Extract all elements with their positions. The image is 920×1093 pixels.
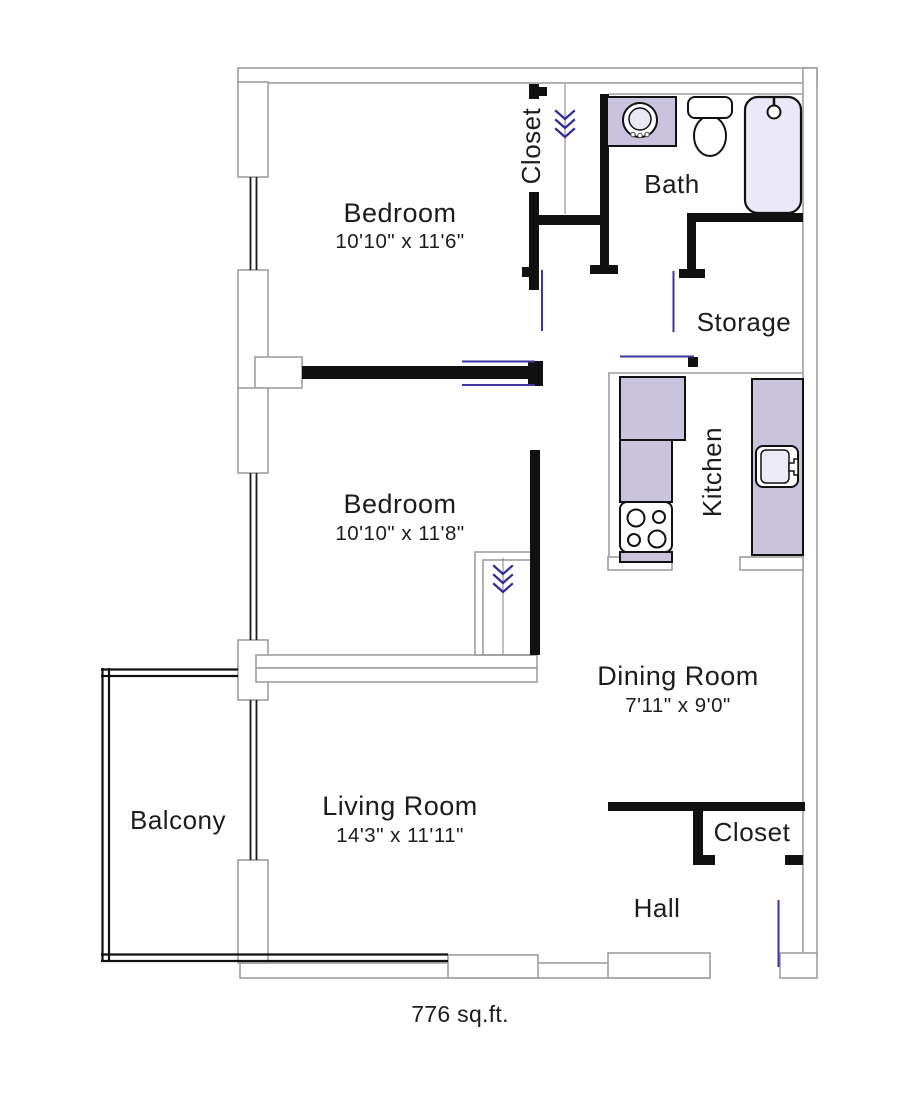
kitchen-south-stub-right bbox=[740, 557, 803, 570]
hall-closet-divider bbox=[693, 811, 703, 858]
kitchen-counter-strip bbox=[620, 552, 672, 562]
wall-bedroom2-living-upper bbox=[256, 655, 537, 668]
balcony-rail-top bbox=[101, 670, 238, 677]
closet1-wall-stub bbox=[529, 84, 539, 99]
bath-fixtures bbox=[607, 97, 801, 213]
shower-head-icon bbox=[768, 106, 781, 119]
bedroom2-closet-outline-inner bbox=[483, 560, 532, 655]
wall-top bbox=[238, 68, 817, 83]
kitchen-counter-upper bbox=[620, 377, 685, 440]
window-bedroom2 bbox=[251, 473, 257, 640]
bath-sink-tap-dot bbox=[638, 133, 642, 137]
hall-closet-top-wall bbox=[608, 802, 805, 811]
window-bedroom1 bbox=[251, 177, 257, 270]
room-label-bedroom2: Bedroom bbox=[343, 489, 456, 519]
wall-bottom-hall bbox=[608, 953, 710, 978]
bedroom2-east-wall bbox=[530, 450, 540, 655]
stove-burner bbox=[653, 511, 665, 523]
bedroom-divider-wall bbox=[302, 366, 543, 379]
wall-bedroom2-living-lower bbox=[256, 668, 537, 682]
stove-burner bbox=[649, 531, 666, 548]
balcony-rail-left bbox=[103, 668, 110, 962]
floor-plan: Bedroom 10'10" x 11'6" Bedroom 10'10" x … bbox=[0, 0, 920, 1093]
room-label-storage: Storage bbox=[697, 307, 792, 337]
bath-south-wall bbox=[687, 213, 803, 222]
floor-plan-svg: Bedroom 10'10" x 11'6" Bedroom 10'10" x … bbox=[0, 0, 920, 1093]
pier-junction bbox=[255, 357, 302, 388]
room-dims-bedroom2: 10'10" x 11'8" bbox=[335, 522, 464, 545]
room-label-kitchen: Kitchen bbox=[697, 427, 727, 517]
bedroom-divider-end-block bbox=[528, 361, 543, 386]
wall-bottom-right-corner bbox=[780, 953, 817, 978]
closet1-wall-cap bbox=[522, 267, 538, 277]
wall-bottom-notch bbox=[448, 955, 538, 978]
toilet-bowl-icon bbox=[694, 116, 726, 156]
room-label-closet-hall: Closet bbox=[714, 817, 791, 847]
bath-west-wall-cap bbox=[590, 265, 618, 274]
hall-closet-divider-foot bbox=[693, 855, 715, 865]
room-label-balcony: Balcony bbox=[130, 805, 226, 835]
area-label: 776 sq.ft. bbox=[411, 1001, 509, 1027]
balcony-rail-bottom bbox=[101, 955, 448, 962]
bath-south-stub bbox=[687, 222, 696, 270]
room-label-living: Living Room bbox=[322, 791, 478, 821]
kitchen-counter-lower bbox=[620, 440, 672, 502]
room-dims-bedroom1: 10'10" x 11'6" bbox=[335, 230, 464, 253]
kitchen-sink-basin bbox=[761, 450, 789, 483]
bath-sink-tap-dot bbox=[645, 132, 649, 136]
closet1-wall-tick bbox=[539, 87, 547, 96]
toilet-tank-icon bbox=[688, 97, 732, 118]
storage-door-post bbox=[688, 357, 698, 367]
closet1-bottom-wall bbox=[529, 215, 605, 225]
wall-right bbox=[803, 68, 817, 955]
pier-left-5 bbox=[238, 860, 268, 963]
room-label-bedroom1: Bedroom bbox=[343, 198, 456, 228]
bath-south-stub-cap bbox=[679, 269, 705, 278]
bath-sink-basin bbox=[629, 108, 651, 130]
pier-left-1 bbox=[238, 82, 268, 177]
bath-sink-tap-dot bbox=[631, 132, 635, 136]
window-living-balcony bbox=[251, 700, 257, 860]
room-label-hall: Hall bbox=[634, 893, 681, 923]
stove-burner bbox=[628, 510, 645, 527]
room-dims-living: 14'3" x 11'11" bbox=[336, 824, 464, 847]
room-dims-dining: 7'11" x 9'0" bbox=[625, 694, 731, 717]
pier-left-3 bbox=[238, 388, 268, 473]
room-label-dining: Dining Room bbox=[597, 661, 759, 691]
hall-closet-right-stub bbox=[785, 855, 803, 865]
room-label-bath: Bath bbox=[644, 169, 700, 199]
stove-burner bbox=[628, 534, 640, 546]
room-label-closet-bedroom1: Closet bbox=[516, 107, 546, 184]
